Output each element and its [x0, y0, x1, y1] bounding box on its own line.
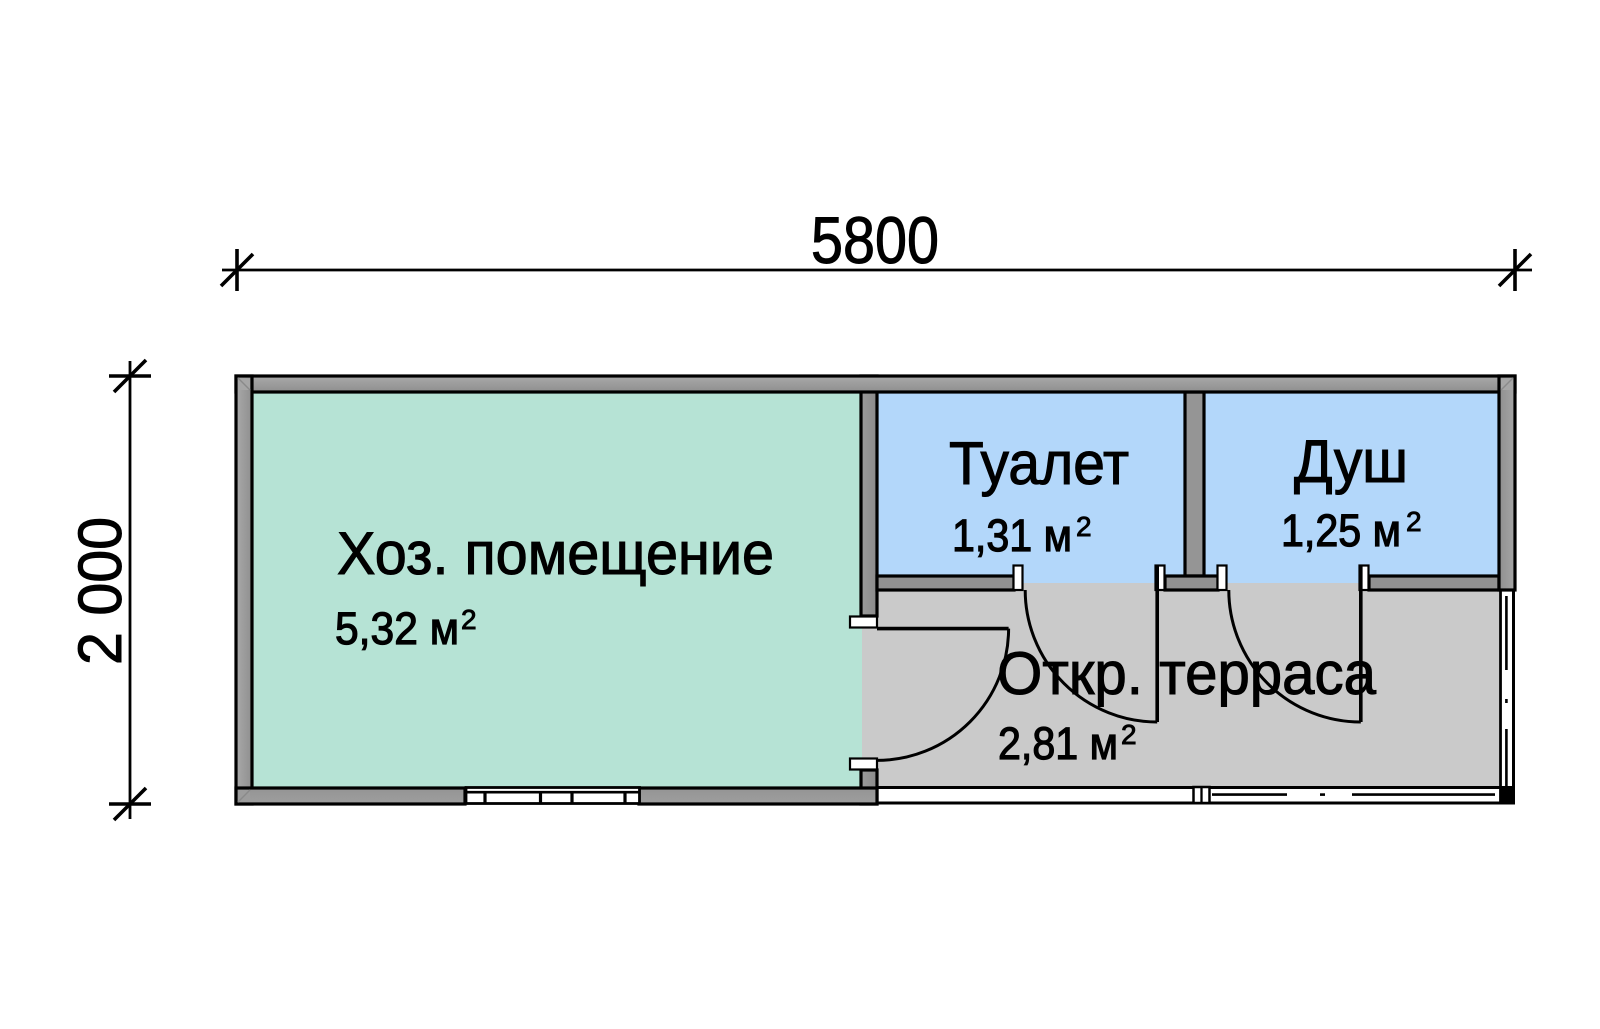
svg-text:Душ: Душ [1294, 428, 1408, 495]
svg-text:2: 2 [1406, 506, 1422, 537]
svg-text:1,25 м: 1,25 м [1281, 505, 1401, 556]
svg-text:2: 2 [461, 604, 477, 635]
svg-text:2: 2 [1076, 511, 1092, 542]
svg-text:Хоз. помещение: Хоз. помещение [337, 520, 774, 587]
svg-text:2: 2 [1121, 719, 1137, 750]
svg-text:5800: 5800 [811, 203, 939, 277]
svg-text:Откр. терраса: Откр. терраса [997, 640, 1377, 707]
svg-text:1,31 м: 1,31 м [952, 510, 1072, 561]
svg-text:5,32 м: 5,32 м [335, 603, 459, 654]
svg-text:2 000: 2 000 [66, 517, 134, 665]
svg-text:2,81 м: 2,81 м [998, 718, 1118, 769]
svg-text:Туалет: Туалет [949, 430, 1129, 497]
